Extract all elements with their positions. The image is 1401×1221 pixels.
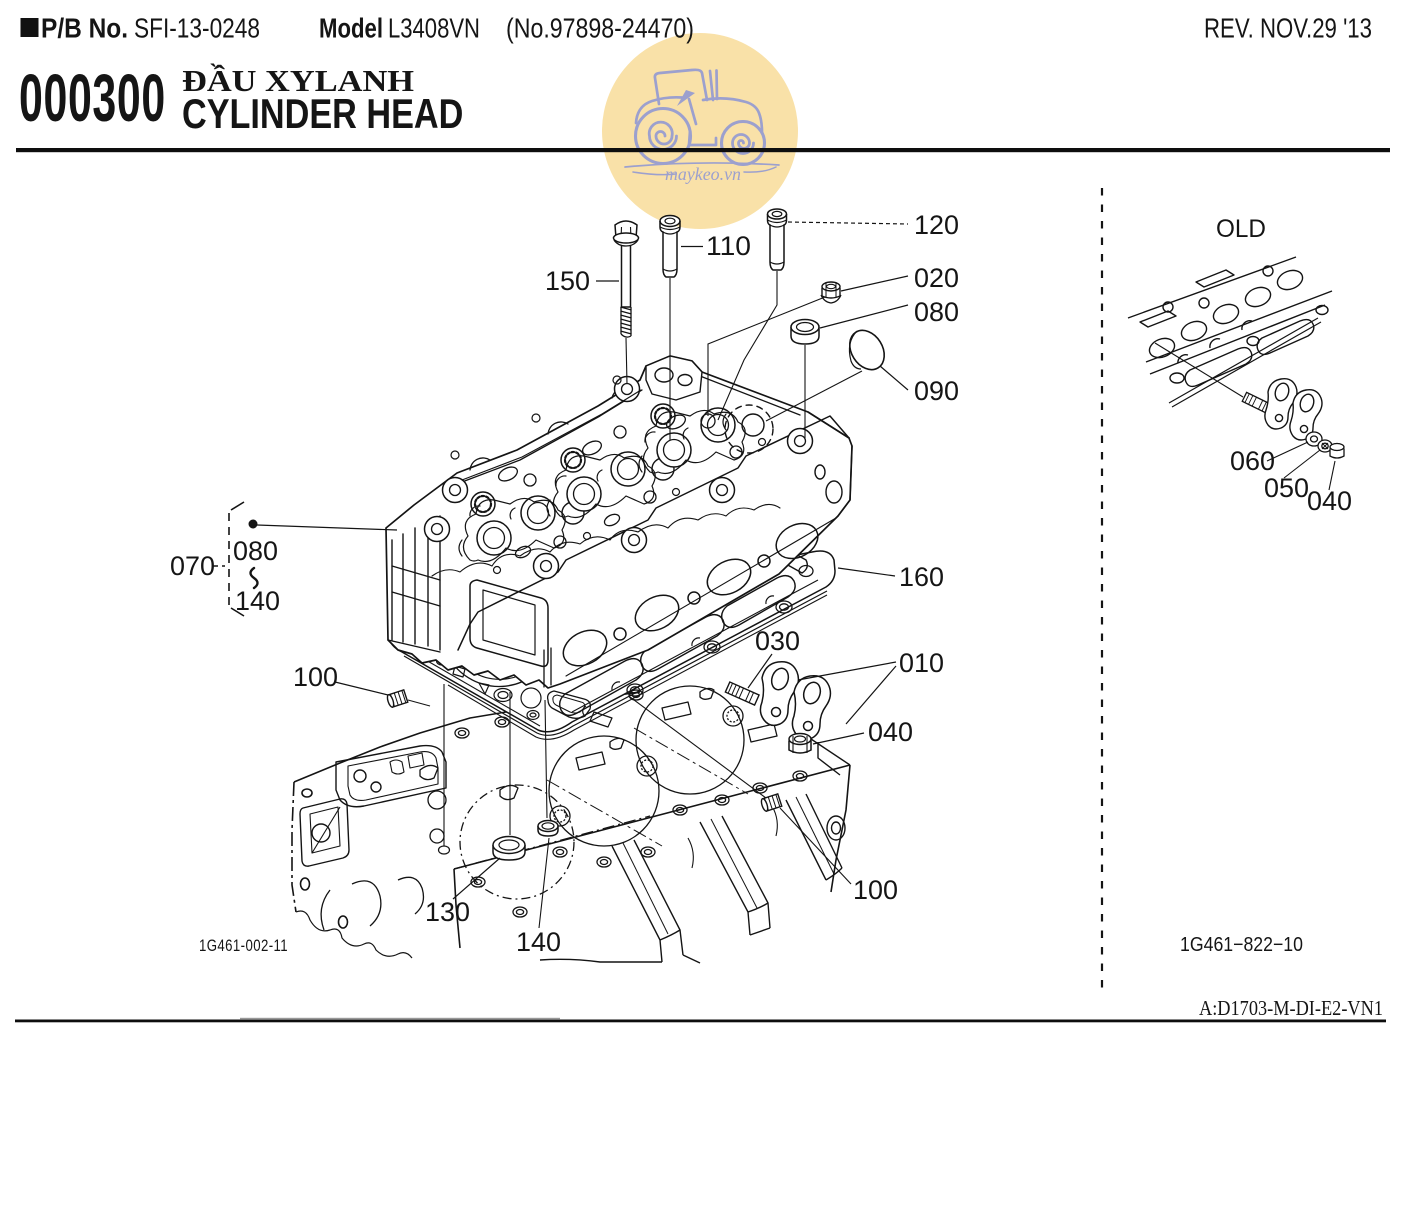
svg-text:OLD: OLD — [1216, 215, 1266, 243]
svg-text:080: 080 — [233, 536, 278, 566]
svg-text:REV. NOV.29 '13: REV. NOV.29 '13 — [1204, 13, 1372, 44]
svg-text:010: 010 — [899, 648, 944, 678]
svg-text:120: 120 — [914, 210, 959, 240]
svg-text:040: 040 — [1307, 486, 1352, 516]
svg-text:090: 090 — [914, 376, 959, 406]
svg-text:030: 030 — [755, 626, 800, 656]
svg-text:160: 160 — [899, 562, 944, 592]
svg-text:050: 050 — [1264, 473, 1309, 503]
svg-text:L3408VN: L3408VN — [388, 13, 480, 44]
svg-text:040: 040 — [868, 717, 913, 747]
svg-text:110: 110 — [706, 231, 751, 261]
svg-text:1G461−822−10: 1G461−822−10 — [1180, 934, 1303, 956]
svg-text:140: 140 — [516, 927, 561, 957]
svg-text:SFI-13-0248: SFI-13-0248 — [134, 13, 260, 44]
svg-text:070: 070 — [170, 551, 215, 581]
svg-text:(No.97898-24470): (No.97898-24470) — [506, 13, 694, 44]
svg-text:020: 020 — [914, 263, 959, 293]
svg-text:000300: 000300 — [19, 60, 166, 135]
svg-text:140: 140 — [235, 586, 280, 616]
svg-text:100: 100 — [293, 662, 338, 692]
svg-text:080: 080 — [914, 297, 959, 327]
svg-text:A:D1703-M-DI-E2-VN1: A:D1703-M-DI-E2-VN1 — [1199, 996, 1383, 1020]
svg-text:maykeo.vn: maykeo.vn — [665, 164, 741, 184]
svg-text:CYLINDER HEAD: CYLINDER HEAD — [182, 91, 463, 138]
svg-text:100: 100 — [853, 875, 898, 905]
svg-text:1G461-002-11: 1G461-002-11 — [199, 937, 288, 955]
svg-text:130: 130 — [425, 897, 470, 927]
svg-text:P/B No.: P/B No. — [41, 13, 128, 44]
svg-text:150: 150 — [545, 266, 590, 296]
svg-text:Model: Model — [319, 13, 383, 44]
